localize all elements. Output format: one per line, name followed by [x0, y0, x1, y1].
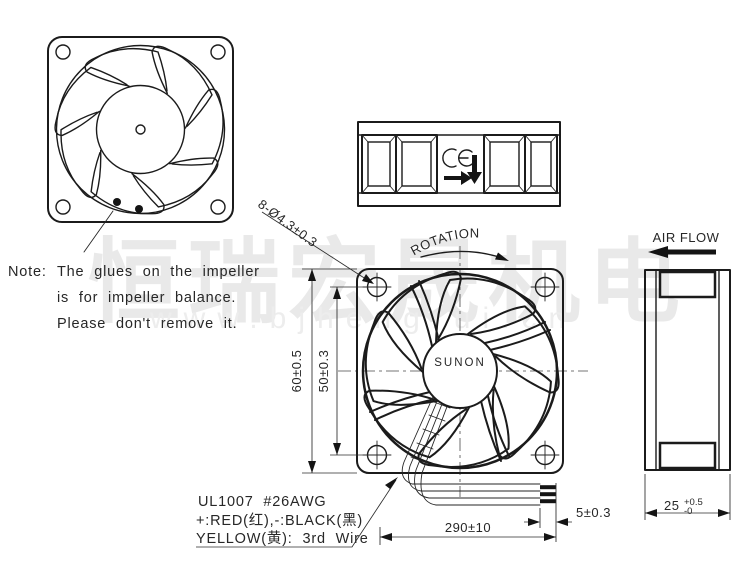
note-line-2: is for impeller balance. [57, 290, 236, 306]
rotation-annotation: ROTATION [408, 226, 509, 261]
wire-spec-label: UL1007 #26AWG [198, 494, 327, 510]
note-label: Note: [8, 264, 47, 280]
ce-mark-icon [443, 149, 472, 167]
note-block: Note: The glues on the impeller is for i… [8, 264, 260, 332]
rear-corner-hole [211, 200, 225, 214]
dim-frame-label: 60±0.5 [289, 350, 304, 393]
front-view: SUNON [338, 246, 588, 505]
wire-polarity-label: +:RED(红),-:BLACK(黑) [196, 512, 363, 529]
rear-corner-hole [56, 200, 70, 214]
airflow-label: AIR FLOW [653, 230, 720, 245]
balance-glue-dot [135, 205, 143, 213]
frame-pad [362, 135, 396, 193]
fan-technical-drawing: 恒瑞宏晟机电 www.bjhengrui.cn [0, 0, 750, 572]
dim-strip-length-label: 5±0.3 [576, 505, 611, 520]
side-flange-top [660, 272, 715, 297]
brand-label: SUNON [434, 357, 486, 369]
rear-corner-hole [211, 45, 225, 59]
lead-wires [402, 390, 556, 505]
rear-view [43, 36, 233, 252]
side-flange-bottom [660, 443, 715, 468]
top-profile-view [358, 122, 560, 206]
note-line-1: The glues on the impeller [57, 264, 260, 280]
rotation-arrow-icon [421, 251, 505, 259]
mounting-hole-callout: 8-Ø4.3±0.3 [255, 196, 374, 284]
dim-depth-tol-minus: -0 [684, 506, 692, 517]
dim-hole-pitch-label: 50±0.3 [316, 350, 331, 393]
side-view: AIR FLOW 25 +0.5 -0 [645, 230, 730, 520]
wire-spec-block: UL1007 #26AWG +:RED(红),-:BLACK(黑) YELLOW… [196, 477, 398, 547]
dimension-strip-length: 5±0.3 [524, 483, 611, 542]
note-leader-line [84, 211, 113, 252]
balance-glue-dot [113, 198, 121, 206]
note-line-3: Please don't remove it. [57, 316, 237, 332]
wire-stripped-tip [540, 492, 556, 496]
rear-hub [97, 86, 185, 174]
frame-pad [525, 135, 557, 193]
dimension-depth: 25 +0.5 -0 [645, 474, 730, 520]
wire-third-label: YELLOW(黄): 3rd Wire [196, 530, 369, 547]
rear-corner-hole [56, 45, 70, 59]
rotation-label: ROTATION [408, 226, 480, 259]
wire-stripped-tip [540, 499, 556, 503]
mounting-holes-label: 8-Ø4.3±0.3 [255, 196, 320, 250]
frame-pad [396, 135, 437, 193]
rotation-arrowhead [495, 253, 509, 262]
front-hub [423, 334, 497, 408]
frame-pad [484, 135, 525, 193]
dim-lead-length-label: 290±10 [445, 520, 491, 535]
wire-stripped-tip [540, 485, 556, 489]
airflow-arrow-icon [648, 246, 716, 258]
dim-depth-label: 25 [664, 498, 679, 513]
